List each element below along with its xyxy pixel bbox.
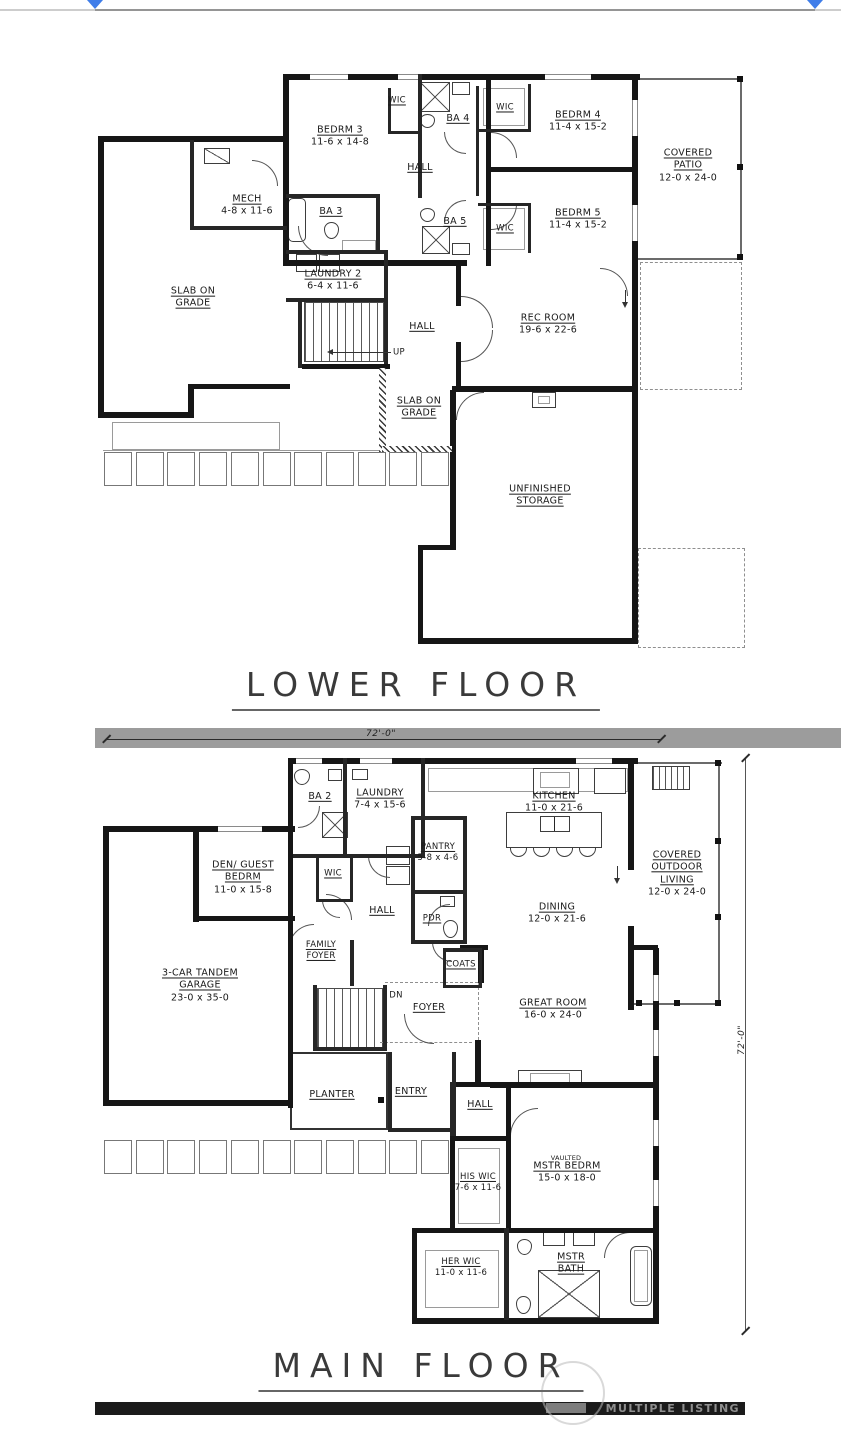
room-label-ba2: BA 2 [308, 791, 331, 803]
paver-square [358, 452, 386, 486]
toilet [517, 1239, 532, 1255]
wall-segment [350, 940, 354, 986]
dimension-label-top: 72'-0" [366, 729, 396, 739]
wall-segment [653, 948, 659, 1088]
door-arc [456, 392, 484, 420]
wall-segment [350, 854, 353, 902]
sink [543, 1232, 565, 1246]
room-label-ba5: BA 5 [443, 216, 466, 228]
tub-inner [634, 1250, 648, 1302]
dm: 12-0 x 24-0 [644, 886, 710, 898]
wall-segment [450, 390, 456, 547]
mls-bar: MULTIPLE LISTING [95, 1402, 745, 1415]
window [576, 758, 612, 764]
wall-segment [632, 266, 638, 392]
bar-stool [556, 848, 573, 857]
wall-segment [452, 386, 638, 392]
nm: KITCHEN [525, 791, 583, 803]
wall-segment [316, 899, 353, 902]
wall-segment [479, 950, 482, 988]
nm: MECH [221, 194, 273, 206]
nm: UP [393, 347, 405, 358]
wall-segment [490, 1082, 656, 1088]
room-label-bedrm3: BEDRM 311-6 x 14-8 [311, 125, 369, 150]
window [632, 100, 638, 136]
nm: FOYER [413, 1002, 445, 1014]
section-arrow-tip [622, 302, 628, 308]
paver-square [421, 1140, 449, 1174]
nm: DEN/ GUEST BEDRM [201, 859, 285, 884]
dm: 11-4 x 15-2 [549, 122, 607, 134]
room-label-foyer: FOYER [413, 1002, 445, 1014]
wall-segment [412, 1228, 417, 1323]
wall-segment [452, 1052, 456, 1136]
wall-segment [343, 758, 347, 858]
wall-segment [478, 129, 531, 132]
wall-segment [286, 194, 380, 198]
wall-segment [450, 1136, 508, 1141]
foyer-dashed [478, 982, 479, 1040]
label-dn: DN [389, 990, 403, 1001]
window [398, 74, 418, 80]
dm: 4-8 x 11-6 [221, 206, 273, 218]
room-label-pantry: PANTRY5-8 x 4-6 [418, 842, 459, 864]
wall-segment [653, 1228, 659, 1324]
wall-segment [478, 203, 531, 206]
wall-segment [188, 384, 290, 389]
paver-square [358, 1140, 386, 1174]
dimension-label-side: 72'-0" [737, 1025, 747, 1055]
patio-edge [638, 78, 742, 80]
wall-segment [190, 140, 194, 230]
wall-segment [193, 826, 199, 922]
wall-segment [456, 266, 461, 306]
room-label-great-room: GREAT ROOM16-0 x 24-0 [519, 998, 586, 1023]
blue-marker-right-icon[interactable] [807, 0, 823, 9]
paver-row [104, 1140, 454, 1176]
wall-segment [632, 390, 638, 644]
door-arc [461, 296, 493, 328]
wall-segment [384, 250, 388, 366]
wall-segment [283, 260, 467, 266]
wall-segment [286, 250, 388, 254]
wall-segment [528, 203, 531, 253]
wall-segment [476, 86, 479, 196]
wall-segment [313, 985, 317, 1051]
dm: 12-0 x 24-0 [655, 172, 721, 184]
wall-segment [628, 926, 634, 1010]
wall-segment [316, 854, 319, 902]
dm: 19-6 x 22-6 [519, 325, 577, 337]
wall-segment [456, 342, 461, 390]
range-inner [540, 772, 570, 788]
nm: HALL [467, 1099, 492, 1111]
dm: 12-0 x 21-6 [528, 914, 586, 926]
window [545, 74, 591, 80]
wall-segment [288, 826, 293, 1108]
nm: FAMILY FOYER [295, 940, 347, 962]
hatched-strip [382, 446, 452, 452]
wall-segment [418, 74, 422, 198]
nm: UNFINISHED STORAGE [496, 484, 584, 509]
room-label-covered-patio: COVERED PATIO12-0 x 24-0 [655, 147, 721, 184]
room-label-coats: COATS [446, 959, 476, 970]
wall-segment [388, 131, 421, 134]
window [296, 758, 322, 764]
patio-post [737, 254, 743, 260]
nm: LAUNDRY 2 [305, 269, 362, 281]
room-label-bedrm5: BEDRM 511-4 x 15-2 [549, 208, 607, 233]
lower-floor-title: LOWER FLOOR [232, 665, 600, 711]
door-arc [491, 132, 517, 158]
paver-square [167, 1140, 195, 1174]
window [653, 1180, 659, 1206]
outdoor-post [636, 1000, 642, 1006]
nm: ENTRY [395, 1086, 427, 1098]
stairs-main [317, 988, 383, 1048]
stairs-lower [304, 302, 384, 362]
outdoor-post [715, 838, 721, 844]
paver-square [167, 452, 195, 486]
nm: PANTRY [418, 842, 459, 853]
island-sink [540, 816, 570, 832]
nm: BA 3 [319, 206, 342, 218]
room-label-hall: HALL [369, 905, 394, 917]
room-label-dining: DINING12-0 x 21-6 [528, 902, 586, 927]
shower [422, 226, 450, 254]
room-label-laundry: LAUNDRY7-4 x 15-6 [354, 788, 406, 813]
section-arrow [617, 866, 618, 878]
room-label-hall: HALL [407, 162, 432, 174]
paver-square [294, 452, 322, 486]
wall-segment [288, 854, 425, 858]
wall-segment [103, 826, 109, 1106]
wall-segment [452, 1082, 494, 1087]
roof-overhang-dashed [638, 548, 745, 648]
dm: 5-8 x 4-6 [418, 853, 459, 864]
nm: BA 5 [443, 216, 466, 228]
room-label-mstr-bath: MSTR BATH [549, 1252, 593, 1277]
room-label-ba4: BA 4 [446, 113, 469, 125]
wall-segment [302, 364, 390, 369]
room-label-kitchen: KITCHEN11-0 x 21-6 [525, 791, 583, 816]
laundry-sink [352, 769, 368, 780]
wall-segment [418, 638, 638, 644]
blue-marker-left-icon[interactable] [87, 0, 103, 9]
toilet [294, 769, 310, 785]
wall-segment [463, 816, 467, 944]
door-arc [404, 1014, 434, 1044]
porch-post [378, 1097, 384, 1103]
window [632, 205, 638, 241]
wall-segment [528, 84, 531, 132]
bar-stool [579, 848, 596, 857]
toilet [420, 208, 435, 222]
dm: 11-0 x 21-6 [525, 803, 583, 815]
dm: 7-4 x 15-6 [354, 800, 406, 812]
nm: PLANTER [309, 1089, 354, 1101]
room-label-wic: WIC [496, 102, 514, 113]
window [653, 1120, 659, 1146]
dm: 11-0 x 15-8 [201, 884, 285, 896]
patio-edge [638, 258, 742, 260]
door-arc [604, 1232, 630, 1258]
patio-post [737, 76, 743, 82]
room-label-slab-on-grade: SLAB ON GRADE [162, 286, 224, 311]
door-arc [298, 806, 320, 828]
nm: HALL [407, 162, 432, 174]
wall-segment [190, 226, 287, 230]
paver-square [231, 452, 259, 486]
outdoor-post [674, 1000, 680, 1006]
up-arrow-tip [327, 349, 333, 355]
dm: 11-0 x 11-6 [435, 1268, 487, 1279]
nm: DINING [528, 902, 586, 914]
room-label-rec-room: REC ROOM19-6 x 22-6 [519, 313, 577, 338]
section-arrow-tip [614, 878, 620, 884]
apron-outline [112, 422, 280, 450]
main-floor-title: MAIN FLOOR [258, 1346, 583, 1392]
shower [420, 82, 450, 112]
wall-segment [411, 816, 415, 944]
outdoor-edge [634, 762, 722, 764]
wall-segment [188, 386, 194, 418]
door-arc [368, 856, 390, 878]
paver-square [199, 452, 227, 486]
paver-square [326, 452, 354, 486]
door-arc [461, 330, 493, 362]
nm: SLAB ON GRADE [388, 396, 450, 421]
wall-segment [443, 948, 482, 952]
bar-stool [533, 848, 550, 857]
bar-stool [510, 848, 527, 857]
nm: GREAT ROOM [519, 998, 586, 1010]
paver-square [389, 1140, 417, 1174]
door-arc [600, 268, 628, 296]
wall-segment [298, 298, 302, 368]
room-label-entry: ENTRY [395, 1086, 427, 1098]
door-arc [444, 132, 466, 154]
wall-segment [100, 136, 289, 142]
window [653, 975, 659, 1001]
label-up: UP [393, 347, 405, 358]
wall-segment [475, 1040, 481, 1085]
up-arrow [333, 352, 391, 353]
outdoor-grill [652, 766, 690, 790]
nm: HER WIC [435, 1257, 487, 1268]
nm: BA 2 [308, 791, 331, 803]
wall-segment [418, 545, 456, 550]
toilet [420, 114, 435, 128]
paver-square [263, 1140, 291, 1174]
room-label-his-wic: HIS WIC7-6 x 11-6 [455, 1172, 502, 1194]
patio-post [737, 164, 743, 170]
paver-square [389, 452, 417, 486]
sink [328, 769, 342, 781]
room-label-bedrm4: BEDRM 411-4 x 15-2 [549, 110, 607, 135]
nm: HALL [369, 905, 394, 917]
nm: COATS [446, 959, 476, 970]
dm: 11-4 x 15-2 [549, 220, 607, 232]
dm: 6-4 x 11-6 [305, 281, 362, 293]
wall-segment [103, 826, 295, 832]
fridge [594, 768, 626, 794]
nm: REC ROOM [519, 313, 577, 325]
dm: 16-0 x 24-0 [519, 1010, 586, 1022]
wall-segment [506, 1228, 659, 1233]
sink [452, 243, 470, 255]
dimension-line [106, 739, 662, 740]
sink [452, 82, 470, 95]
wall-segment [443, 985, 482, 988]
wall-segment [412, 1228, 508, 1233]
room-label-wic: WIC [496, 223, 514, 234]
room-label-mech: MECH4-8 x 11-6 [221, 194, 273, 219]
room-label-wic: WIC [324, 868, 342, 879]
room-label-mstr-bedrm: MSTR BEDRM15-0 x 18-0 [533, 1161, 600, 1186]
room-label-pdr: PDR [423, 913, 441, 924]
room-label-ba3: BA 3 [319, 206, 342, 218]
room-label-hall: HALL [409, 321, 434, 333]
nm: 3-CAR TANDEM GARAGE [152, 967, 248, 992]
wall-segment [412, 1318, 659, 1324]
paver-square [326, 1140, 354, 1174]
wall-segment [388, 1052, 392, 1132]
roof-overhang-dashed [640, 262, 742, 390]
wall-segment [628, 758, 634, 870]
foyer-dashed [385, 982, 478, 983]
nm: WIC [324, 868, 342, 879]
door-arc [510, 1108, 538, 1136]
dm: 23-0 x 35-0 [152, 992, 248, 1004]
paver-square [231, 1140, 259, 1174]
window [360, 758, 392, 764]
island-sink-divider [554, 817, 555, 831]
room-label-hall: HALL [467, 1099, 492, 1111]
room-label-wic: WIC [388, 95, 406, 106]
wall-segment [283, 74, 289, 266]
room-label-slab-on-grade: SLAB ON GRADE [388, 396, 450, 421]
nm: HALL [409, 321, 434, 333]
outdoor-post [715, 914, 721, 920]
wall-segment [506, 1088, 511, 1233]
wall-segment [653, 1088, 659, 1233]
paver-square [104, 452, 132, 486]
wall-segment [411, 890, 467, 894]
window [218, 826, 262, 832]
nm: BEDRM 4 [549, 110, 607, 122]
paver-row [104, 452, 454, 488]
outdoor-post [715, 1000, 721, 1006]
nm: WIC [388, 95, 406, 106]
wall-segment [376, 194, 380, 254]
paver-square [421, 452, 449, 486]
nm: SLAB ON GRADE [162, 286, 224, 311]
dm: 15-0 x 18-0 [533, 1173, 600, 1185]
door-arc [252, 160, 278, 186]
nm: WIC [496, 102, 514, 113]
nm: MSTR BEDRM [533, 1161, 600, 1173]
sink [573, 1232, 595, 1246]
nm: MSTR BATH [549, 1252, 593, 1277]
wall-segment [98, 136, 104, 418]
room-label-covered-outdoor-living: COVERED OUTDOOR LIVING12-0 x 24-0 [644, 849, 710, 898]
dimension-bar [95, 728, 841, 748]
window [653, 1030, 659, 1056]
paver-square [136, 1140, 164, 1174]
nm: PDR [423, 913, 441, 924]
paver-square [199, 1140, 227, 1174]
room-label-unfinished-storage: UNFINISHED STORAGE [496, 484, 584, 509]
room-label-family-foyer: FAMILY FOYER [295, 940, 347, 962]
nm: BEDRM 5 [549, 208, 607, 220]
shower [538, 1270, 600, 1318]
nm: DN [389, 990, 403, 1001]
wall-segment [486, 167, 636, 172]
wall-segment [383, 985, 387, 1051]
dm: 7-6 x 11-6 [455, 1183, 502, 1194]
wall-segment [504, 1228, 509, 1320]
paver-square [136, 452, 164, 486]
nm: LAUNDRY [354, 788, 406, 800]
outdoor-post [715, 760, 721, 766]
window [310, 74, 348, 80]
door-arc [322, 900, 340, 918]
paver-square [104, 1140, 132, 1174]
water-heater [204, 148, 230, 164]
room-label-her-wic: HER WIC11-0 x 11-6 [435, 1257, 487, 1279]
paver-square [294, 1140, 322, 1174]
nm: WIC [496, 223, 514, 234]
room-label-garage: 3-CAR TANDEM GARAGE23-0 x 35-0 [152, 967, 248, 1004]
room-label-den-guest-bedrm: DEN/ GUEST BEDRM11-0 x 15-8 [201, 859, 285, 896]
wall-segment [411, 816, 467, 820]
viewer-range-line [95, 9, 815, 11]
hatched-strip [379, 368, 386, 452]
wall-segment [418, 548, 423, 644]
nm: BA 4 [446, 113, 469, 125]
nm: HIS WIC [455, 1172, 502, 1183]
wall-segment [98, 412, 194, 418]
room-label-planter: PLANTER [309, 1089, 354, 1101]
outdoor-edge [718, 762, 720, 1005]
nm: COVERED OUTDOOR LIVING [644, 849, 710, 886]
toilet [516, 1296, 531, 1314]
wall-segment [313, 1047, 387, 1051]
wall-segment [193, 916, 295, 921]
nm: COVERED PATIO [655, 147, 721, 172]
fireplace-inner [538, 396, 550, 404]
wall-segment [388, 1128, 456, 1132]
dm: 11-6 x 14-8 [311, 137, 369, 149]
room-label-laundry2: LAUNDRY 26-4 x 11-6 [305, 269, 362, 294]
floor-plan-page: BEDRM 311-6 x 14-8 WIC BA 4 WIC BEDRM 41… [0, 0, 841, 1439]
wall-segment [103, 1100, 293, 1106]
nm: BEDRM 3 [311, 125, 369, 137]
section-arrow [625, 290, 626, 302]
paver-square [263, 452, 291, 486]
wall-segment [411, 940, 467, 944]
